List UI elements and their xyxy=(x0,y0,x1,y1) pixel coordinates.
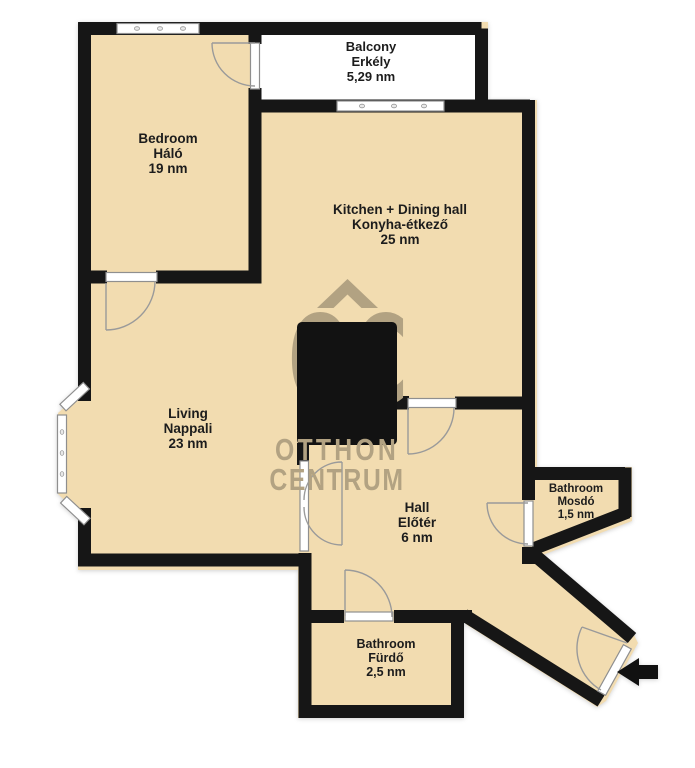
room-name-hu: Mosdó xyxy=(549,496,603,509)
floor-plan-image: OC OTTHON CENTRUM Balcony Erkély 5,29 nm… xyxy=(0,0,695,768)
bathroom-furdo-door xyxy=(345,612,393,621)
room-label-living: Living Nappali 23 nm xyxy=(164,406,213,451)
floor-plan-drawing: OC OTTHON CENTRUM xyxy=(0,0,695,768)
room-area: 23 nm xyxy=(164,436,213,451)
kitchen-door xyxy=(408,399,456,408)
room-label-hall: Hall Előtér 6 nm xyxy=(398,500,436,545)
room-name-en: Bathroom xyxy=(549,483,603,496)
bathroom-mosdo-door xyxy=(524,501,533,546)
svg-text:CENTRUM: CENTRUM xyxy=(269,462,404,496)
room-label-bathroom-mosdo: Bathroom Mosdó 1,5 nm xyxy=(549,483,603,522)
room-area: 5,29 nm xyxy=(346,69,397,84)
utility-shaft xyxy=(297,322,397,445)
watermark-text: OTTHON CENTRUM xyxy=(269,432,404,496)
room-name-hu: Erkély xyxy=(346,54,397,69)
room-label-bathroom-furdo: Bathroom Fürdő 2,5 nm xyxy=(356,637,415,679)
balcony-door xyxy=(251,43,260,89)
room-name-en: Living xyxy=(164,406,213,421)
room-label-kitchen: Kitchen + Dining hall Konyha-étkező 25 n… xyxy=(333,202,467,247)
room-area: 1,5 nm xyxy=(549,509,603,522)
room-name-en: Bathroom xyxy=(356,637,415,651)
room-area: 19 nm xyxy=(138,161,197,176)
bedroom-door xyxy=(106,273,157,282)
room-name-hu: Nappali xyxy=(164,421,213,436)
room-name-hu: Konyha-étkező xyxy=(333,217,467,232)
room-label-balcony: Balcony Erkély 5,29 nm xyxy=(346,39,397,84)
room-name-hu: Fürdő xyxy=(356,651,415,665)
room-label-bedroom: Bedroom Háló 19 nm xyxy=(138,131,197,176)
room-name-hu: Háló xyxy=(138,146,197,161)
room-area: 2,5 nm xyxy=(356,665,415,679)
room-name-en: Hall xyxy=(398,500,436,515)
room-name-en: Bedroom xyxy=(138,131,197,146)
kitchen-balcony-window xyxy=(337,101,444,111)
room-name-en: Balcony xyxy=(346,39,397,54)
room-area: 6 nm xyxy=(398,530,436,545)
room-name-en: Kitchen + Dining hall xyxy=(333,202,467,217)
room-area: 25 nm xyxy=(333,232,467,247)
room-name-hu: Előtér xyxy=(398,515,436,530)
